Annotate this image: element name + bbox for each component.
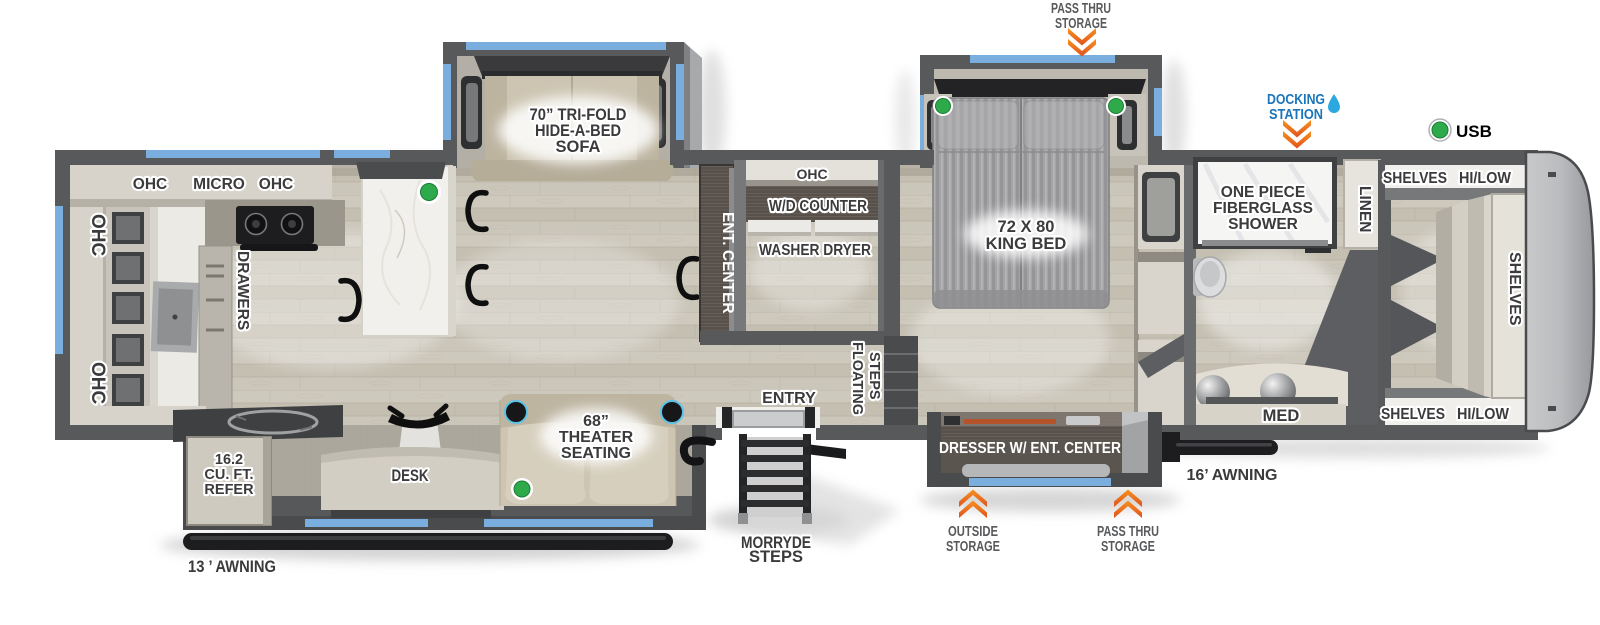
- svg-text:16.2: 16.2: [215, 452, 243, 468]
- svg-text:DRESSER W/ ENT. CENTER: DRESSER W/ ENT. CENTER: [939, 440, 1121, 457]
- svg-text:72 X 80: 72 X 80: [998, 218, 1055, 236]
- svg-text:16’ AWNING: 16’ AWNING: [1187, 467, 1278, 484]
- svg-text:STORAGE: STORAGE: [1055, 16, 1107, 32]
- svg-text:STORAGE: STORAGE: [1101, 539, 1155, 555]
- svg-text:CU. FT.: CU. FT.: [204, 467, 253, 483]
- svg-text:13 ’ AWNING: 13 ’ AWNING: [188, 558, 276, 576]
- svg-text:FIBERGLASS: FIBERGLASS: [1213, 200, 1313, 217]
- svg-text:SHELVES: SHELVES: [1383, 170, 1447, 187]
- svg-text:ENT. CENTER: ENT. CENTER: [719, 212, 736, 314]
- svg-text:DRAWERS: DRAWERS: [234, 251, 251, 330]
- svg-text:STATION: STATION: [1269, 107, 1323, 123]
- svg-text:PASS THRU: PASS THRU: [1097, 524, 1159, 540]
- svg-text:USB: USB: [1456, 122, 1492, 141]
- svg-text:SOFA: SOFA: [556, 138, 601, 156]
- svg-text:DESK: DESK: [392, 467, 429, 485]
- svg-text:68”: 68”: [583, 413, 609, 430]
- svg-text:OHC: OHC: [259, 176, 293, 193]
- svg-text:OUTSIDE: OUTSIDE: [948, 524, 998, 540]
- svg-text:MED: MED: [1263, 407, 1300, 425]
- svg-text:THEATER: THEATER: [559, 429, 634, 446]
- svg-text:OHC: OHC: [87, 362, 108, 405]
- svg-text:W/D COUNTER: W/D COUNTER: [769, 198, 867, 215]
- svg-text:STEPS: STEPS: [866, 352, 882, 400]
- svg-text:KING BED: KING BED: [986, 235, 1067, 253]
- svg-text:SEATING: SEATING: [561, 445, 631, 462]
- svg-text:ENTRY: ENTRY: [762, 390, 816, 407]
- svg-text:PASS THRU: PASS THRU: [1051, 1, 1111, 17]
- svg-text:REFER: REFER: [204, 482, 254, 498]
- svg-text:OHC: OHC: [87, 214, 108, 257]
- svg-text:FLOATING: FLOATING: [849, 342, 865, 415]
- svg-text:HI/LOW: HI/LOW: [1457, 406, 1509, 423]
- svg-text:DOCKING: DOCKING: [1267, 92, 1325, 108]
- svg-text:SHOWER: SHOWER: [1228, 216, 1298, 233]
- svg-text:ONE PIECE: ONE PIECE: [1221, 184, 1305, 201]
- svg-text:SHELVES: SHELVES: [1506, 252, 1523, 326]
- svg-text:SHELVES: SHELVES: [1381, 406, 1445, 423]
- svg-text:STORAGE: STORAGE: [946, 539, 1000, 555]
- svg-text:STEPS: STEPS: [749, 548, 803, 566]
- svg-text:LINEN: LINEN: [1356, 186, 1373, 233]
- svg-text:OHC: OHC: [796, 166, 827, 182]
- svg-text:WASHER DRYER: WASHER DRYER: [759, 242, 871, 259]
- svg-text:MICRO: MICRO: [193, 176, 245, 193]
- svg-text:OHC: OHC: [133, 176, 167, 193]
- svg-text:HI/LOW: HI/LOW: [1459, 170, 1511, 187]
